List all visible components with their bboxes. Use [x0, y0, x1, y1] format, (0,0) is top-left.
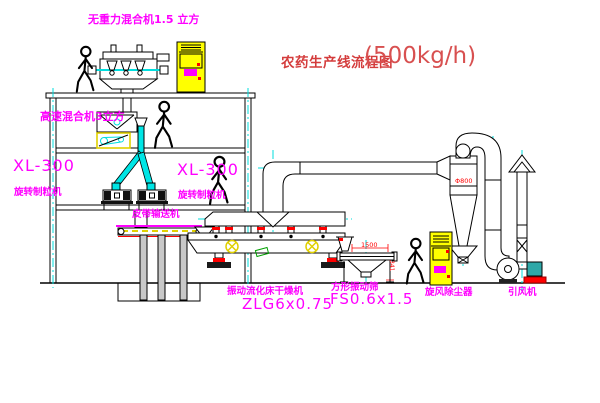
label-granulator-right-model: XL-300 — [177, 162, 239, 178]
dryer-vibration-mounts — [212, 226, 327, 233]
cyclone-separator — [449, 156, 477, 263]
label-granulator-left-model: XL-300 — [13, 158, 75, 174]
label-sieve-model: FS0.6x1.5 — [330, 292, 413, 307]
dim-cyclone-diameter: Φ800 — [455, 178, 473, 185]
label-gravity-mixer: 无重力混合机1.5 立方 — [88, 14, 199, 25]
high-speed-mixer — [97, 98, 147, 153]
worker-figure — [155, 102, 172, 148]
label-granulator-right-name: 旋转制粒机 — [178, 191, 226, 201]
flowchart-canvas: 农药生产线流程图 (500kg/h) 无重力混合机1.5 立方 高速混合机3立方… — [0, 0, 600, 403]
gravity-free-mixer — [88, 45, 169, 93]
label-granulator-left-name: 旋转制粒机 — [14, 188, 62, 198]
diagram-capacity: (500kg/h) — [364, 43, 476, 69]
label-cyclone: 旋风除尘器 — [425, 288, 473, 298]
label-high-speed-mixer: 高速混合机3立方 — [40, 111, 125, 122]
exhaust-stack — [509, 155, 535, 262]
control-cabinet-1 — [177, 42, 205, 92]
label-belt-conveyor: 皮带输送机 — [132, 210, 180, 220]
y-chute — [114, 151, 153, 187]
label-dryer-model: ZLG6x0.75 — [242, 297, 333, 312]
worker-figure — [407, 239, 424, 284]
dim-sieve-height: 341 — [388, 260, 394, 271]
belt-conveyor — [116, 210, 214, 300]
dim-sieve-length: 1500 — [361, 242, 378, 249]
label-induced-fan: 引风机 — [508, 288, 537, 298]
mixer-funnels — [107, 61, 145, 75]
control-cabinet-2 — [430, 232, 452, 285]
